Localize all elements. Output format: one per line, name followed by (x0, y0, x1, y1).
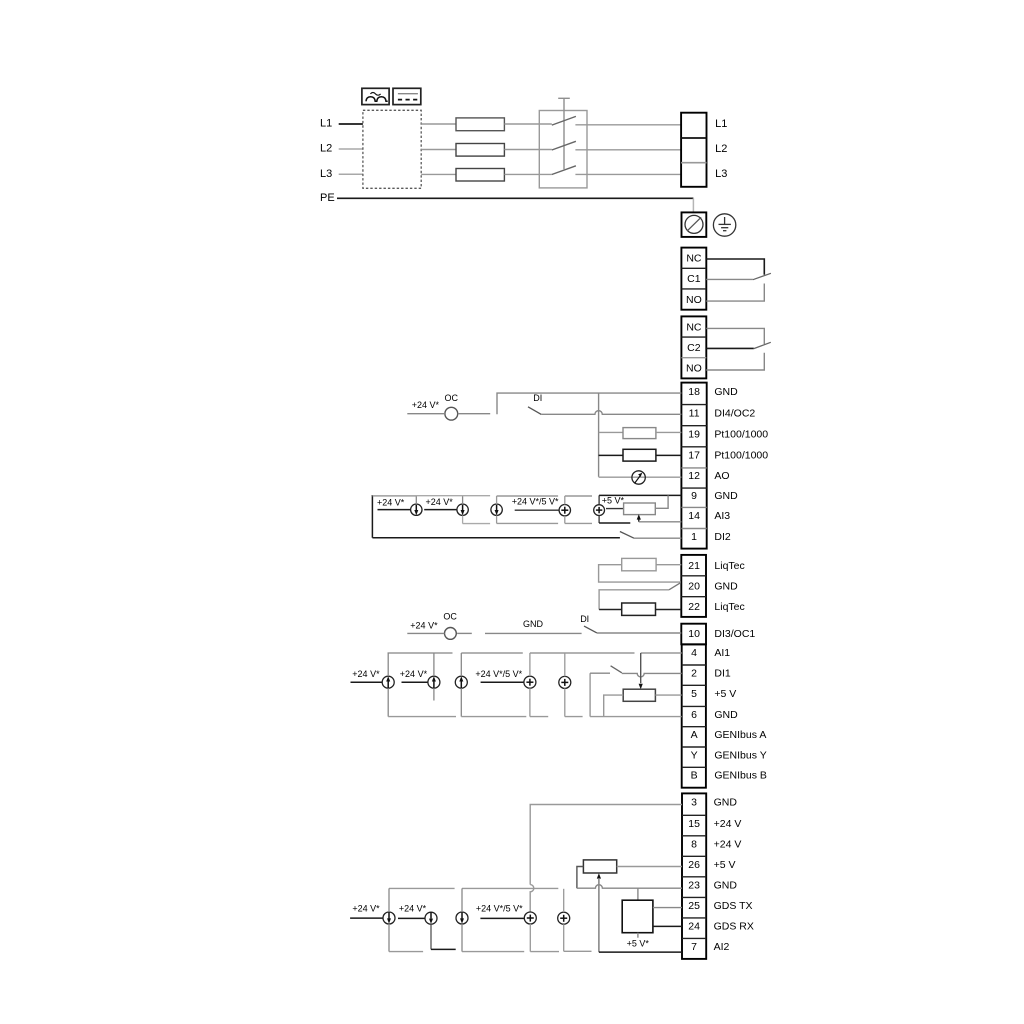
svg-text:6: 6 (691, 709, 697, 721)
svg-text:+5 V*: +5 V* (602, 496, 625, 506)
svg-text:OC: OC (445, 393, 459, 403)
svg-text:DI1: DI1 (714, 667, 731, 679)
svg-text:AI1: AI1 (714, 647, 730, 659)
svg-text:25: 25 (688, 900, 700, 912)
svg-text:+24 V*: +24 V* (352, 903, 380, 913)
svg-text:+5 V: +5 V (714, 688, 736, 700)
svg-text:DI2: DI2 (714, 531, 731, 543)
svg-text:L1: L1 (320, 118, 332, 130)
svg-text:A: A (691, 729, 698, 741)
svg-text:DI3/OC1: DI3/OC1 (714, 628, 755, 640)
svg-text:C1: C1 (687, 273, 701, 285)
svg-text:10: 10 (688, 628, 700, 640)
svg-text:9: 9 (691, 490, 697, 502)
svg-text:DI4/OC2: DI4/OC2 (714, 407, 755, 419)
svg-text:L3: L3 (715, 168, 727, 180)
svg-text:12: 12 (688, 470, 700, 482)
svg-text:5: 5 (691, 688, 697, 700)
svg-text:GND: GND (523, 619, 544, 629)
svg-text:L3: L3 (320, 168, 332, 180)
svg-text:+5 V: +5 V (714, 859, 736, 871)
svg-text:17: 17 (688, 450, 700, 462)
svg-text:L2: L2 (320, 142, 332, 154)
svg-text:+24 V: +24 V (714, 838, 742, 850)
svg-text:GND: GND (714, 797, 738, 809)
svg-text:OC: OC (443, 612, 457, 622)
svg-text:15: 15 (688, 818, 700, 830)
svg-text:LiqTec: LiqTec (714, 601, 744, 613)
svg-text:+24 V*: +24 V* (410, 620, 438, 630)
svg-text:AI3: AI3 (714, 510, 730, 522)
svg-text:+24 V*/5 V*: +24 V*/5 V* (476, 903, 523, 913)
svg-text:+24 V*: +24 V* (412, 400, 440, 410)
svg-text:AI2: AI2 (714, 941, 730, 953)
svg-text:DI: DI (580, 614, 589, 624)
svg-text:PE: PE (320, 192, 335, 204)
svg-text:Pt100/1000: Pt100/1000 (714, 450, 768, 462)
svg-text:C2: C2 (687, 342, 701, 354)
svg-text:GDS RX: GDS RX (714, 920, 754, 932)
svg-text:18: 18 (688, 386, 700, 398)
svg-text:14: 14 (688, 510, 700, 522)
svg-text:NC: NC (686, 321, 702, 333)
svg-text:+24 V*/5 V*: +24 V*/5 V* (475, 669, 522, 679)
svg-text:NO: NO (686, 294, 702, 306)
svg-text:3: 3 (691, 797, 697, 809)
svg-text:19: 19 (688, 429, 700, 441)
svg-text:23: 23 (688, 879, 700, 891)
svg-text:+24 V*: +24 V* (400, 669, 428, 679)
svg-text:NO: NO (686, 363, 702, 375)
svg-text:+24 V*: +24 V* (377, 498, 405, 508)
svg-text:NC: NC (686, 253, 702, 265)
svg-text:22: 22 (688, 601, 700, 613)
svg-text:GENIbus A: GENIbus A (714, 729, 766, 741)
svg-text:+24 V: +24 V (714, 818, 742, 830)
svg-text:DI: DI (533, 393, 542, 403)
svg-text:+24 V*: +24 V* (352, 669, 380, 679)
svg-text:LiqTec: LiqTec (714, 560, 744, 572)
svg-text:20: 20 (688, 581, 700, 593)
svg-text:B: B (691, 770, 698, 782)
svg-text:11: 11 (689, 407, 700, 419)
svg-text:1: 1 (691, 531, 697, 543)
svg-text:Y: Y (691, 749, 698, 761)
svg-text:GND: GND (714, 581, 738, 593)
svg-text:GDS TX: GDS TX (714, 900, 753, 912)
svg-text:+24 V*: +24 V* (426, 497, 454, 507)
svg-text:21: 21 (688, 560, 700, 572)
svg-text:26: 26 (688, 859, 700, 871)
svg-text:GND: GND (714, 709, 738, 721)
svg-text:GENIbus Y: GENIbus Y (714, 749, 766, 761)
svg-text:2: 2 (691, 667, 697, 679)
svg-text:+5 V*: +5 V* (627, 938, 650, 948)
svg-text:GND: GND (714, 879, 738, 891)
svg-text:+24 V*: +24 V* (399, 903, 427, 913)
svg-text:L2: L2 (715, 143, 727, 155)
svg-text:7: 7 (691, 941, 697, 953)
svg-text:+24 V*/5 V*: +24 V*/5 V* (512, 497, 559, 507)
svg-text:GENIbus B: GENIbus B (714, 770, 767, 782)
svg-text:Pt100/1000: Pt100/1000 (714, 429, 768, 441)
svg-text:4: 4 (691, 647, 697, 659)
svg-text:GND: GND (714, 490, 738, 502)
svg-text:GND: GND (714, 386, 738, 398)
svg-text:24: 24 (688, 920, 700, 932)
svg-text:L1: L1 (715, 118, 727, 130)
svg-text:AO: AO (714, 470, 729, 482)
svg-text:8: 8 (691, 838, 697, 850)
